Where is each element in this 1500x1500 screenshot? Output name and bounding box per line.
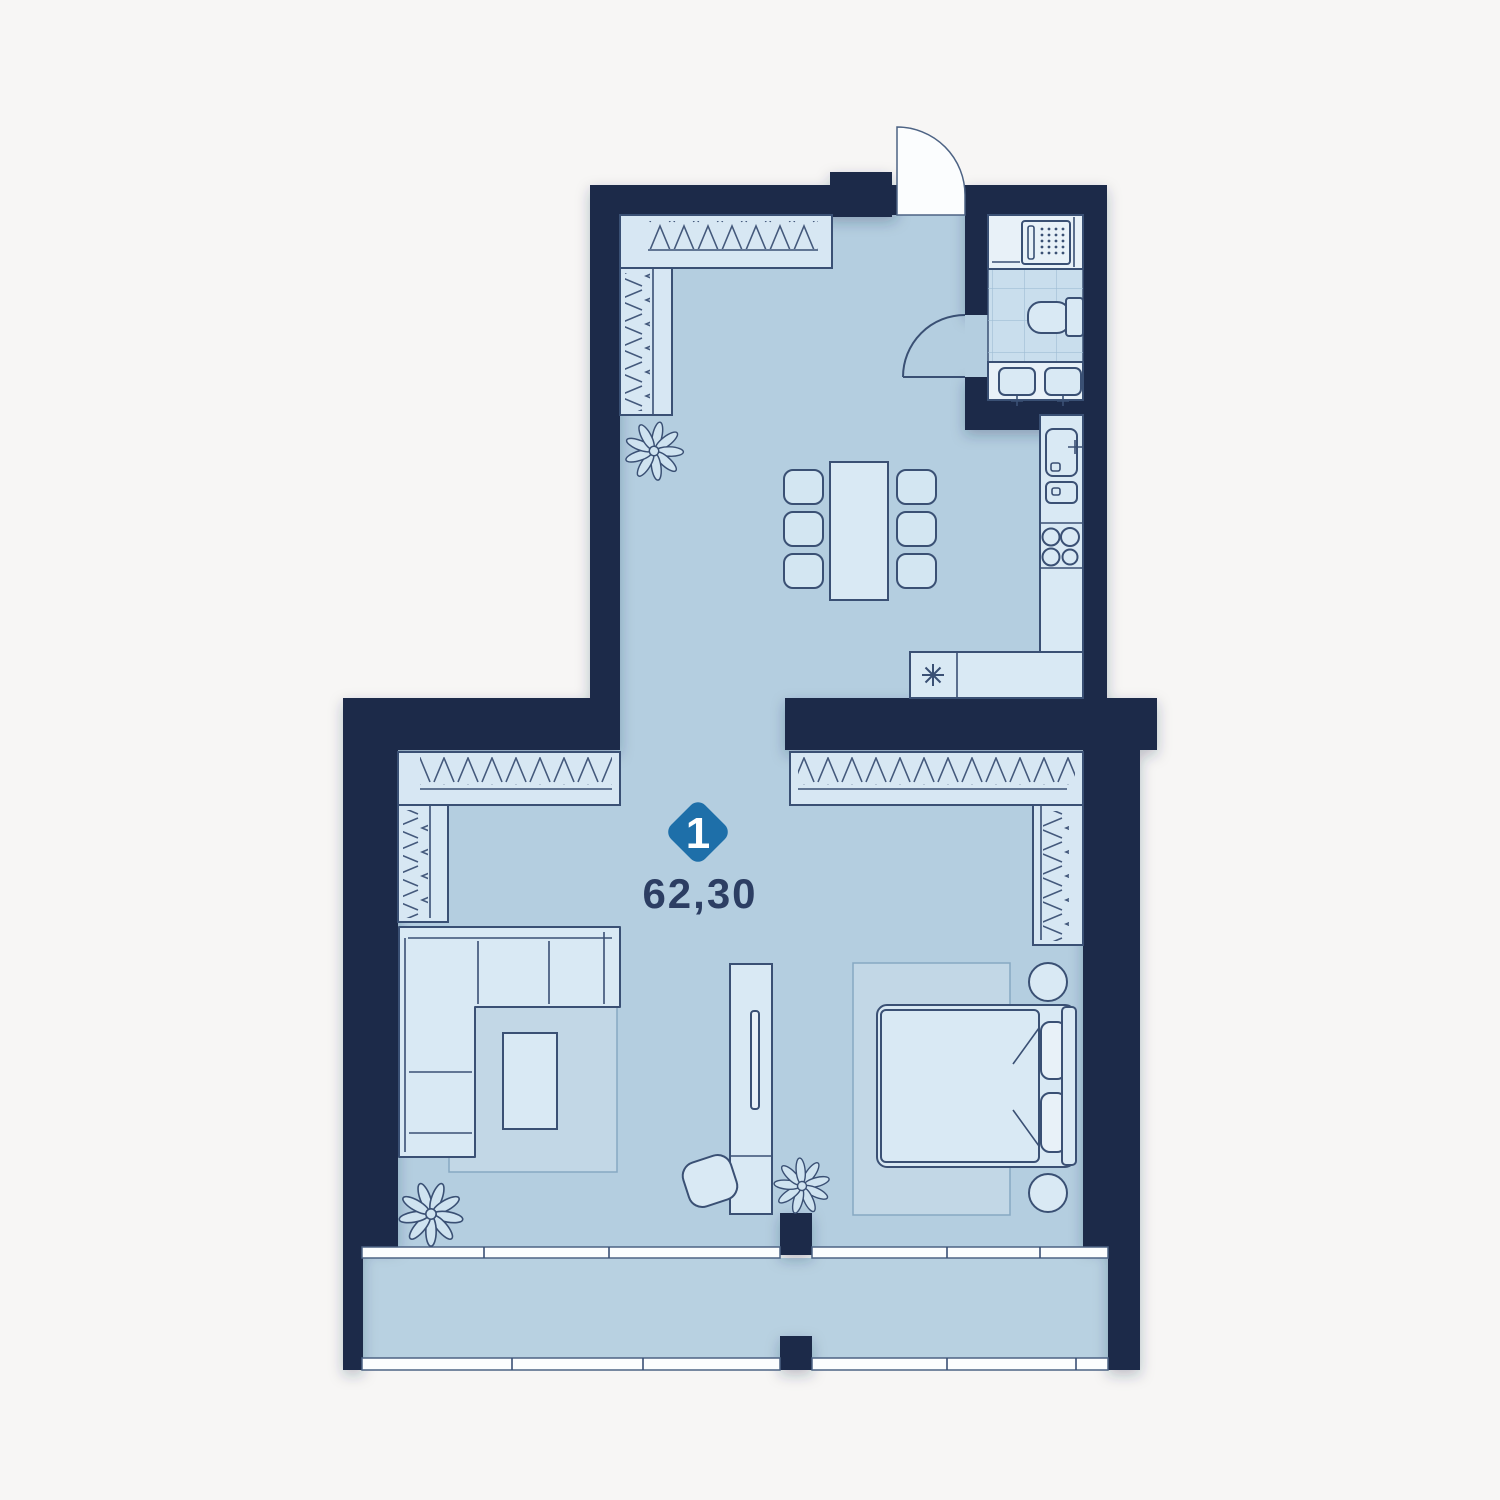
dining-table-icon bbox=[830, 462, 888, 600]
wardrobe-rail-hatch bbox=[625, 273, 650, 411]
tv-icon bbox=[751, 1011, 759, 1109]
wall-segment bbox=[965, 215, 988, 315]
balcony-floor bbox=[362, 1258, 1108, 1358]
window-icon bbox=[812, 1247, 1108, 1258]
coffee-table-icon bbox=[503, 1033, 557, 1129]
wall-segment bbox=[830, 172, 892, 217]
window-icon bbox=[362, 1247, 780, 1258]
living-room bbox=[399, 927, 620, 1172]
wall-segment bbox=[780, 1336, 812, 1370]
chair-icon bbox=[897, 554, 936, 588]
bathroom bbox=[988, 215, 1083, 406]
wardrobe-rail-hatch bbox=[403, 810, 428, 918]
bedroom bbox=[853, 963, 1076, 1215]
chair-icon bbox=[784, 470, 823, 504]
double-sink-icon bbox=[988, 362, 1083, 406]
window-icon bbox=[362, 1358, 780, 1370]
window-icon bbox=[812, 1358, 1108, 1370]
dining-set bbox=[784, 462, 936, 600]
wardrobe-rail-hatch bbox=[1043, 811, 1069, 941]
nightstand-icon bbox=[1029, 963, 1067, 1001]
wall-segment bbox=[1083, 750, 1140, 1247]
bed-icon bbox=[877, 1005, 1076, 1167]
wall-segment bbox=[785, 698, 1157, 750]
wardrobe-rail-hatch bbox=[798, 757, 1075, 785]
area-label: 62,30 bbox=[642, 870, 757, 917]
nightstand-icon bbox=[1029, 1174, 1067, 1212]
wardrobe-rail-hatch bbox=[420, 757, 612, 785]
wall-segment bbox=[1083, 185, 1107, 750]
bed-headboard bbox=[1062, 1007, 1076, 1165]
chair-icon bbox=[784, 554, 823, 588]
floor-plan: 1 62,30 bbox=[0, 0, 1500, 1500]
wall-segment bbox=[343, 698, 398, 1247]
chair-icon bbox=[897, 512, 936, 546]
wardrobe-rail-hatch bbox=[648, 221, 818, 249]
chair-icon bbox=[784, 512, 823, 546]
wall-segment bbox=[780, 1213, 812, 1255]
wall-segment bbox=[1108, 1247, 1140, 1370]
corridor-floor bbox=[620, 698, 785, 750]
toilet-icon bbox=[1028, 298, 1083, 336]
wall-segment bbox=[590, 185, 620, 750]
wall-segment bbox=[343, 1247, 363, 1370]
chair-icon bbox=[897, 470, 936, 504]
bathroom-doorway bbox=[965, 315, 988, 377]
washer-cabinet bbox=[988, 215, 1083, 269]
unit-number: 1 bbox=[686, 809, 710, 858]
